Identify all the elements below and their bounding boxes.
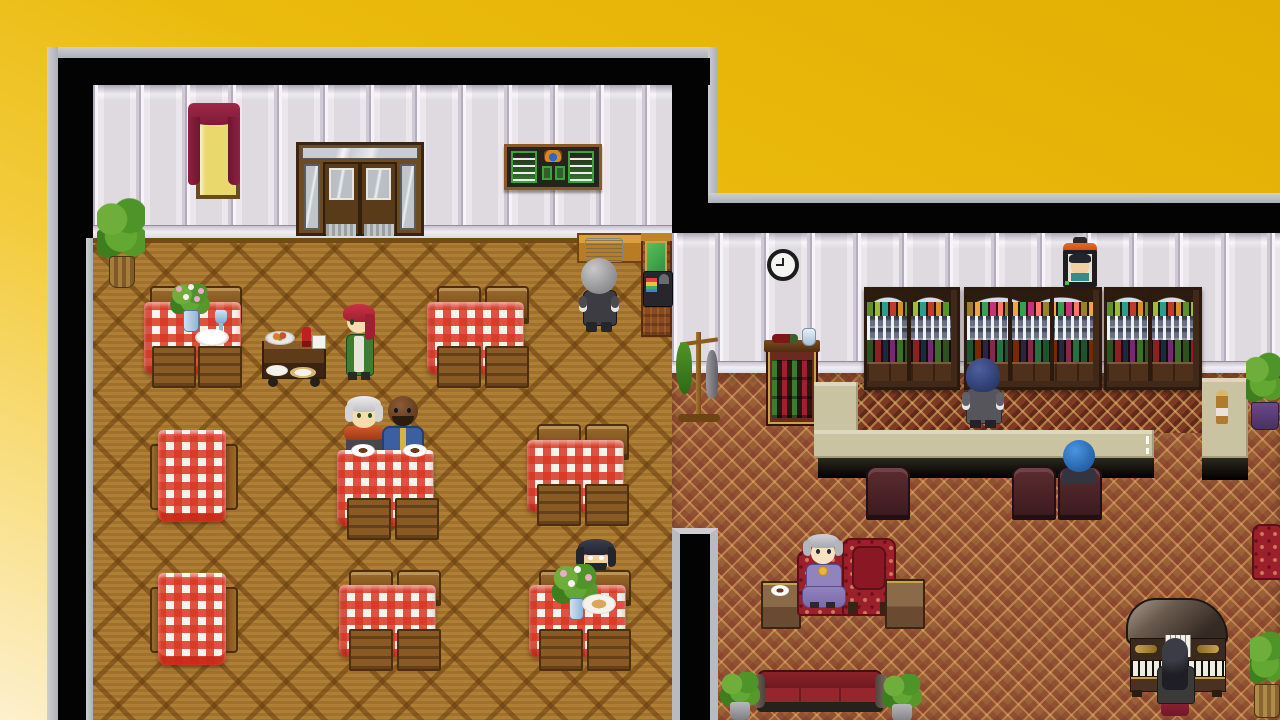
potted-plant-corner [1250,628,1280,720]
chair [539,629,583,671]
dining-table-c [158,430,226,522]
character-bartender[interactable] [962,358,1004,428]
wall-top-restaurant [58,58,710,85]
bar-chair [1012,466,1056,520]
sofa [757,670,883,714]
chair [585,484,629,526]
counter-sign [645,241,667,275]
game-viewport [0,0,1280,720]
portrait [1061,241,1099,287]
potted-plant-lounge [1246,350,1280,434]
coffee-cup [351,444,375,457]
flower-vase [170,284,210,332]
window [188,103,240,195]
character-old-lady[interactable] [802,536,844,608]
side-table [885,579,925,629]
chair [485,346,529,388]
bar-chair [866,466,910,520]
map-border-top [47,47,717,58]
character-waitress[interactable] [341,306,377,382]
wall-clock [767,249,799,281]
food-plate [582,594,616,614]
map-border-left [47,47,58,720]
bar-shelf-1[interactable] [864,287,960,390]
coffee-cup [771,585,789,596]
chair [198,346,242,388]
entrance-door[interactable] [296,142,424,241]
food-cart[interactable] [262,327,326,385]
character-pianist[interactable] [1155,638,1195,720]
potted-plant-restaurant [97,196,145,292]
coat-rack [676,332,722,428]
bar-shelf-3[interactable] [1104,287,1202,390]
counter-bottle [1216,390,1228,424]
chair [587,629,631,671]
chair [347,498,391,540]
wall-divider-bottom [672,528,718,720]
chair [152,346,196,388]
counter-gap-mark [1146,448,1149,454]
chair [537,484,581,526]
dining-table-f [158,573,226,665]
wall-top-lounge [672,203,1280,233]
chair [437,346,481,388]
character-bar-patron[interactable] [1060,440,1098,484]
potted-plant-sofa-left [720,672,760,720]
wine-cabinet[interactable] [766,334,818,432]
potted-plant-sofa-right [882,674,922,720]
bar-counter-face-right [1202,458,1248,480]
bar-counter-front [814,430,1154,458]
cash-register[interactable] [643,271,673,307]
armchair-edge [1252,524,1280,580]
chair [395,498,439,540]
counter-gap-mark [1146,436,1149,444]
map-border-top-right [708,193,1280,203]
menu-board[interactable] [504,144,602,194]
floor-left-trim [86,238,93,720]
character-clerk[interactable] [578,258,620,332]
chair [349,629,393,671]
plate [195,329,229,346]
bar-back-carpet [856,383,1206,433]
chair [397,629,441,671]
coffee-cup [403,444,427,457]
